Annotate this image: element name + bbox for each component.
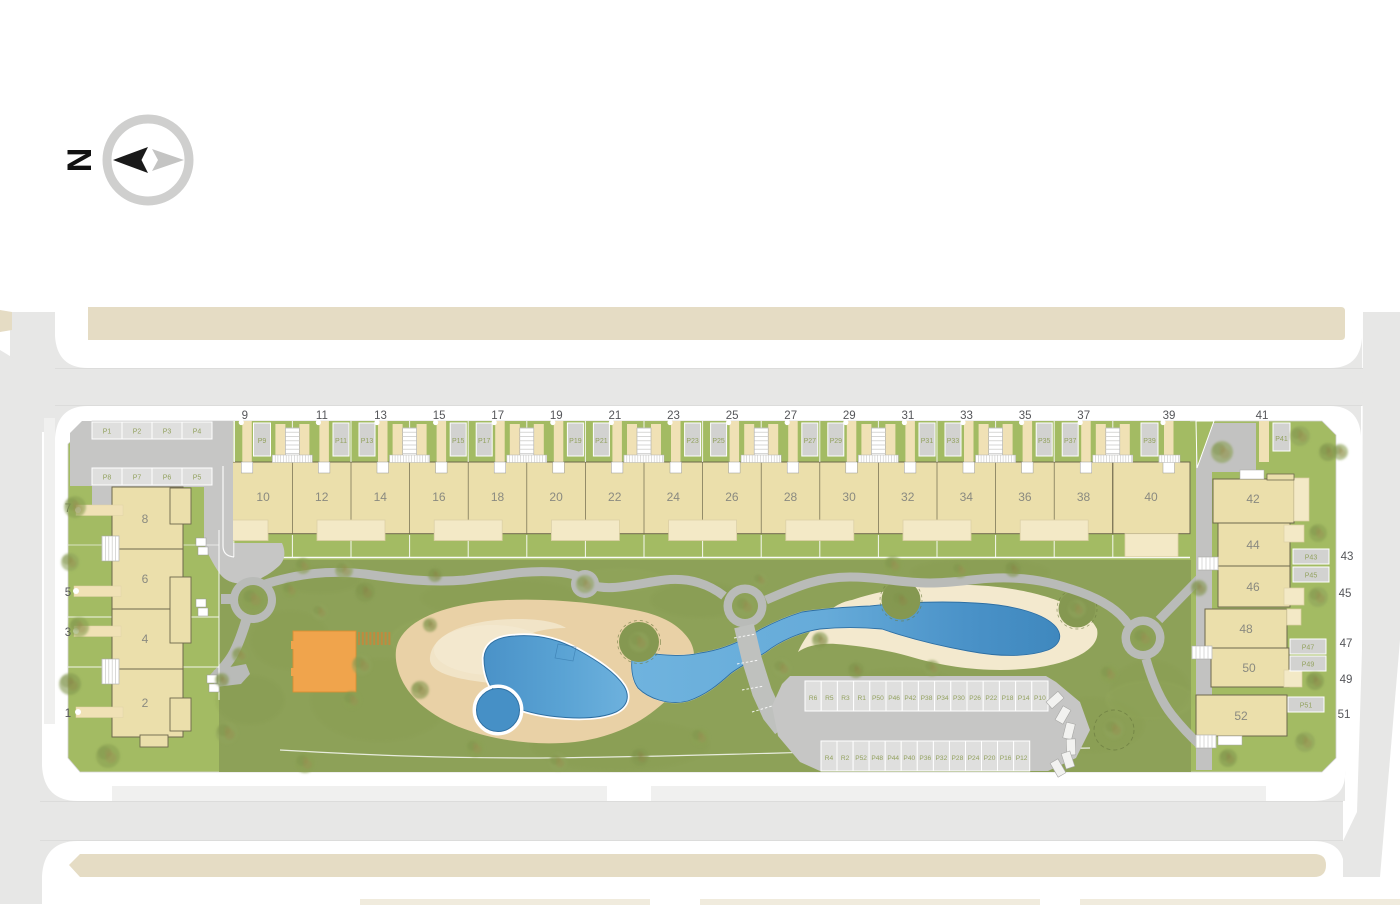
svg-text:R3: R3 (841, 695, 850, 702)
svg-text:P52: P52 (855, 755, 867, 762)
svg-text:P42: P42 (904, 695, 916, 702)
svg-text:P21: P21 (595, 438, 608, 445)
svg-text:P33: P33 (947, 438, 960, 445)
svg-text:34: 34 (960, 490, 974, 504)
svg-text:20: 20 (549, 490, 563, 504)
svg-text:51: 51 (1338, 709, 1351, 721)
svg-text:19: 19 (550, 410, 563, 422)
svg-text:P30: P30 (953, 695, 965, 702)
svg-text:P27: P27 (804, 438, 817, 445)
svg-text:N: N (61, 148, 99, 173)
svg-text:39: 39 (1163, 410, 1176, 422)
svg-text:P23: P23 (686, 438, 699, 445)
svg-text:5: 5 (65, 587, 71, 599)
svg-text:P2: P2 (133, 429, 142, 436)
svg-text:P10: P10 (1034, 695, 1046, 702)
svg-text:P49: P49 (1302, 662, 1315, 669)
svg-text:40: 40 (1144, 490, 1158, 504)
svg-text:16: 16 (432, 490, 446, 504)
svg-text:43: 43 (1341, 551, 1354, 563)
svg-text:1: 1 (65, 708, 71, 720)
svg-text:29: 29 (843, 410, 856, 422)
svg-text:26: 26 (725, 490, 739, 504)
svg-text:P20: P20 (984, 755, 996, 762)
svg-text:52: 52 (1234, 709, 1248, 723)
svg-text:R2: R2 (841, 755, 850, 762)
svg-text:36: 36 (1018, 490, 1032, 504)
svg-text:P9: P9 (258, 438, 267, 445)
svg-text:P1: P1 (103, 429, 112, 436)
svg-text:13: 13 (374, 410, 387, 422)
svg-text:P24: P24 (968, 755, 980, 762)
svg-text:P36: P36 (919, 755, 931, 762)
svg-text:P11: P11 (335, 438, 347, 445)
svg-text:47: 47 (1340, 638, 1353, 650)
svg-text:45: 45 (1339, 588, 1352, 600)
svg-text:P35: P35 (1038, 438, 1051, 445)
svg-text:37: 37 (1077, 410, 1090, 422)
svg-text:P28: P28 (952, 755, 964, 762)
svg-text:8: 8 (142, 512, 149, 526)
svg-text:32: 32 (901, 490, 915, 504)
svg-text:P19: P19 (569, 438, 582, 445)
svg-text:44: 44 (1246, 538, 1260, 552)
svg-text:R4: R4 (825, 755, 834, 762)
svg-text:24: 24 (667, 490, 681, 504)
svg-text:P4: P4 (193, 429, 202, 436)
svg-text:9: 9 (242, 410, 248, 422)
svg-text:38: 38 (1077, 490, 1091, 504)
svg-text:P22: P22 (985, 695, 997, 702)
svg-text:P39: P39 (1143, 438, 1156, 445)
svg-text:P8: P8 (103, 475, 112, 482)
svg-text:R5: R5 (825, 695, 834, 702)
svg-text:27: 27 (784, 410, 797, 422)
svg-text:42: 42 (1246, 492, 1260, 506)
svg-text:P43: P43 (1305, 555, 1318, 562)
svg-text:P50: P50 (872, 695, 884, 702)
svg-text:50: 50 (1242, 661, 1256, 675)
svg-text:P46: P46 (888, 695, 900, 702)
svg-text:17: 17 (491, 410, 504, 422)
svg-text:P16: P16 (1000, 755, 1012, 762)
svg-text:18: 18 (491, 490, 505, 504)
svg-text:22: 22 (608, 490, 622, 504)
svg-text:P29: P29 (830, 438, 843, 445)
svg-text:33: 33 (960, 410, 973, 422)
svg-text:P6: P6 (163, 475, 172, 482)
svg-text:P17: P17 (478, 438, 491, 445)
svg-text:28: 28 (784, 490, 798, 504)
svg-text:P14: P14 (1018, 695, 1030, 702)
svg-text:2: 2 (142, 696, 149, 710)
svg-text:P12: P12 (1016, 755, 1028, 762)
svg-text:R6: R6 (809, 695, 818, 702)
svg-text:10: 10 (256, 490, 270, 504)
svg-text:35: 35 (1019, 410, 1032, 422)
svg-text:31: 31 (902, 410, 915, 422)
svg-text:P13: P13 (361, 438, 374, 445)
svg-text:12: 12 (315, 490, 329, 504)
svg-text:P38: P38 (921, 695, 933, 702)
svg-text:P37: P37 (1064, 438, 1077, 445)
svg-text:P18: P18 (1002, 695, 1014, 702)
svg-text:P7: P7 (133, 475, 142, 482)
svg-text:4: 4 (142, 632, 149, 646)
svg-text:11: 11 (316, 410, 328, 422)
svg-text:P40: P40 (903, 755, 915, 762)
svg-text:P41: P41 (1275, 436, 1288, 443)
svg-text:P48: P48 (871, 755, 883, 762)
svg-text:P51: P51 (1300, 703, 1313, 710)
svg-text:46: 46 (1246, 580, 1260, 594)
svg-text:48: 48 (1239, 622, 1253, 636)
svg-text:P31: P31 (921, 438, 934, 445)
svg-text:P32: P32 (936, 755, 948, 762)
svg-text:P3: P3 (163, 429, 172, 436)
svg-text:P25: P25 (712, 438, 725, 445)
svg-text:14: 14 (374, 490, 388, 504)
svg-text:P15: P15 (452, 438, 465, 445)
svg-text:15: 15 (433, 410, 446, 422)
svg-text:21: 21 (609, 410, 622, 422)
svg-text:25: 25 (726, 410, 739, 422)
svg-text:R1: R1 (857, 695, 866, 702)
svg-text:P34: P34 (937, 695, 949, 702)
svg-text:P5: P5 (193, 475, 202, 482)
svg-text:30: 30 (842, 490, 856, 504)
svg-text:6: 6 (142, 572, 149, 586)
svg-text:49: 49 (1340, 674, 1353, 686)
svg-text:P44: P44 (887, 755, 899, 762)
svg-text:P26: P26 (969, 695, 981, 702)
svg-text:23: 23 (667, 410, 680, 422)
svg-text:41: 41 (1256, 410, 1269, 422)
svg-text:P45: P45 (1305, 573, 1318, 580)
svg-text:P47: P47 (1302, 645, 1315, 652)
